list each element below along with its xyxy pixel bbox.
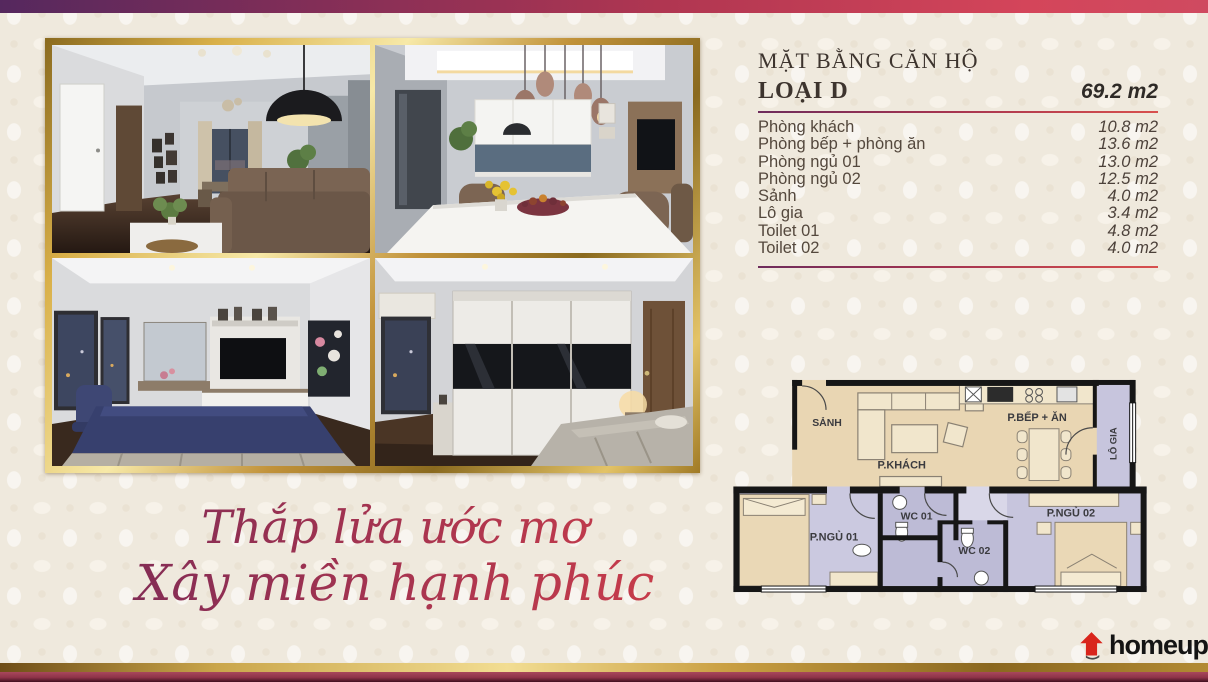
- room-label: Sảnh: [758, 188, 797, 205]
- room-area: 10.8 m2: [1098, 119, 1158, 136]
- room-label: Toilet 02: [758, 240, 819, 257]
- section-title: MẶT BẰNG CĂN HỘ: [758, 48, 1158, 74]
- room-label: Phòng khách: [758, 119, 854, 136]
- divider-bottom: [758, 266, 1158, 268]
- unit-total-area: 69.2 m2: [1081, 80, 1158, 104]
- plan-label-loggia: LÔ GIA: [1108, 427, 1120, 460]
- photo-collage-frame: [45, 38, 700, 473]
- unit-info-panel: MẶT BẰNG CĂN HỘ LOẠI D 69.2 m2 Phòng khá…: [758, 48, 1158, 274]
- bedroom-1-photo: [52, 258, 370, 466]
- room-label: Lô gia: [758, 205, 803, 222]
- divider-top: [758, 111, 1158, 113]
- brand-name: homeup: [1109, 630, 1208, 661]
- slogan-line-2: Xây miền hạnh phúc: [120, 554, 670, 613]
- slogan: Thắp lửa ước mơ Xây miền hạnh phúc: [120, 500, 670, 613]
- bottom-gold-bar: [0, 663, 1208, 672]
- room-area: 3.4 m2: [1108, 205, 1158, 222]
- floor-plan: SẢNH P.KHÁCH P.BẾP + ĂN LÔ GIA P.NGỦ 01 …: [728, 373, 1156, 597]
- table-row: Phòng bếp + phòng ăn 13.6 m2: [758, 136, 1158, 153]
- plan-label-wc-2: WC 02: [958, 546, 990, 557]
- living-room-illustration: [52, 45, 370, 253]
- brochure-page: Thắp lửa ước mơ Xây miền hạnh phúc MẶT B…: [0, 0, 1208, 682]
- room-area-table: Phòng khách 10.8 m2 Phòng bếp + phòng ăn…: [758, 119, 1158, 257]
- room-area: 12.5 m2: [1098, 171, 1158, 188]
- plan-label-wc-1: WC 01: [901, 511, 933, 522]
- room-label: Phòng ngủ 01: [758, 154, 861, 171]
- bottom-maroon-bar: [0, 672, 1208, 682]
- plan-label-bedroom-2: P.NGỦ 02: [1047, 506, 1095, 519]
- top-gradient-bar: [0, 0, 1208, 13]
- plan-label-hall: SẢNH: [812, 416, 842, 429]
- room-label: Phòng ngủ 02: [758, 171, 861, 188]
- room-area: 4.0 m2: [1108, 240, 1158, 257]
- plan-label-kitchen: P.BẾP + ĂN: [1007, 411, 1067, 424]
- room-area: 4.8 m2: [1108, 223, 1158, 240]
- table-row: Lô gia 3.4 m2: [758, 205, 1158, 222]
- table-row: Toilet 01 4.8 m2: [758, 223, 1158, 240]
- room-label: Phòng bếp + phòng ăn: [758, 136, 925, 153]
- bedroom-2-photo: [375, 258, 693, 466]
- kitchen-dining-illustration: [375, 45, 693, 253]
- bedroom-2-illustration: [375, 258, 693, 466]
- table-row: Toilet 02 4.0 m2: [758, 240, 1158, 257]
- kitchen-dining-photo: [375, 45, 693, 253]
- table-row: Phòng khách 10.8 m2: [758, 119, 1158, 136]
- room-area: 13.0 m2: [1098, 154, 1158, 171]
- table-row: Phòng ngủ 02 12.5 m2: [758, 171, 1158, 188]
- brand-logo: homeup: [1078, 630, 1208, 661]
- slogan-line-1: Thắp lửa ước mơ: [120, 500, 670, 554]
- plan-label-bedroom-1: P.NGỦ 01: [810, 530, 858, 543]
- table-row: Sảnh 4.0 m2: [758, 188, 1158, 205]
- living-room-photo: [52, 45, 370, 253]
- room-label: Toilet 01: [758, 223, 819, 240]
- room-area: 13.6 m2: [1098, 136, 1158, 153]
- plan-label-living: P.KHÁCH: [877, 459, 926, 472]
- table-row: Phòng ngủ 01 13.0 m2: [758, 154, 1158, 171]
- type-row: LOẠI D 69.2 m2: [758, 78, 1158, 105]
- room-area: 4.0 m2: [1108, 188, 1158, 205]
- floor-plan-drawing: SẢNH P.KHÁCH P.BẾP + ĂN LÔ GIA P.NGỦ 01 …: [728, 373, 1156, 597]
- photo-grid: [52, 45, 693, 466]
- unit-type-label: LOẠI D: [758, 78, 849, 105]
- bedroom-1-illustration: [52, 258, 370, 466]
- homeup-house-arrow-icon: [1078, 631, 1105, 660]
